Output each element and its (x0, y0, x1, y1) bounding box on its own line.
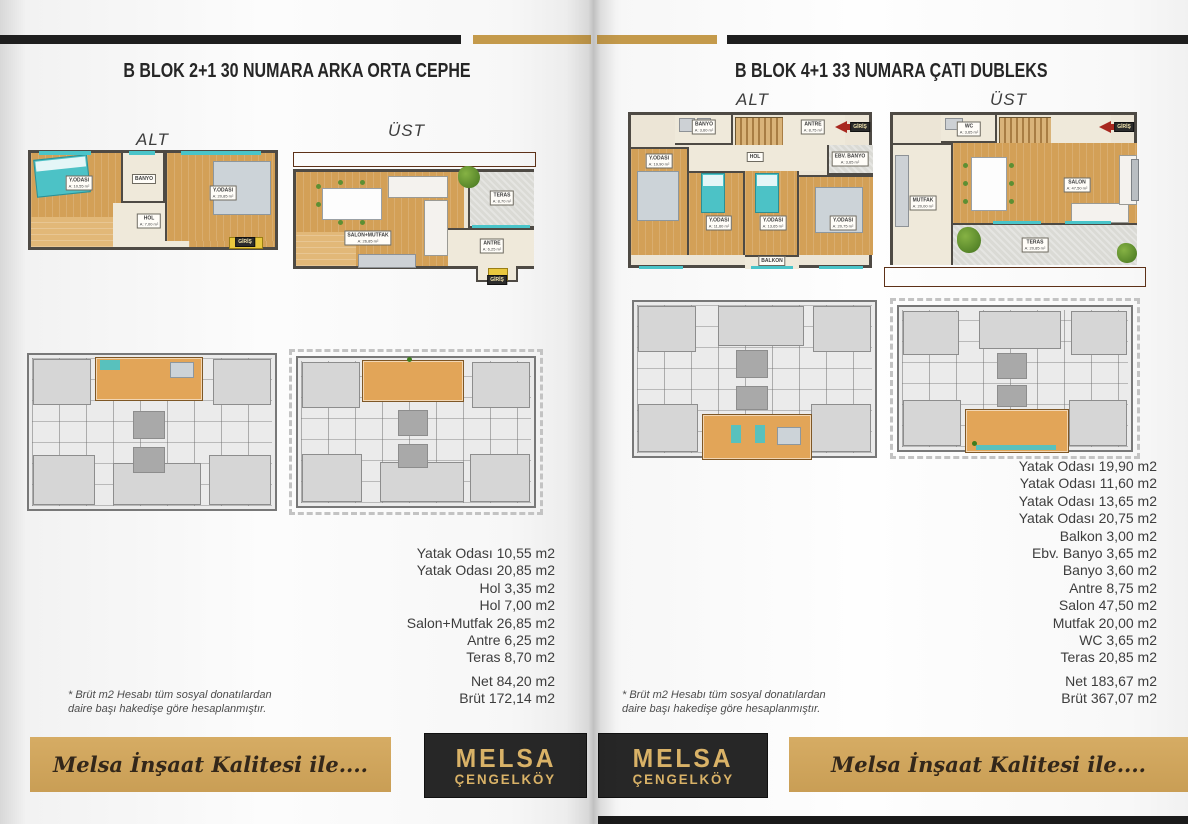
room-label: BANYO (132, 174, 156, 184)
room-area: A: 20,85 m² (213, 194, 234, 199)
logo-line2: ÇENGELKÖY (455, 771, 556, 787)
highlighted-unit (95, 357, 203, 401)
highlighted-unit (702, 414, 812, 460)
room-label: TERASA: 8,70 m² (490, 191, 514, 206)
quality-banner: Melsa İnşaat Kalitesi ile.... (789, 737, 1188, 792)
giris-arrow-icon (1099, 121, 1111, 133)
chair-icon (963, 199, 968, 204)
measurement-line: Yatak Odası 13,65 m2 (897, 493, 1157, 510)
room-name: GİRİŞ (1117, 124, 1131, 130)
keyplan-room (813, 306, 871, 352)
bed-icon (701, 173, 725, 213)
entrance-label: GİRİŞ (850, 122, 870, 132)
room-area: A: 20,85 m² (1025, 246, 1046, 251)
left-ust-floorplan: SALON+MUTFAKA: 26,85 m² TERASA: 8,70 m² … (293, 169, 534, 269)
plant-icon (957, 227, 981, 253)
room-label: Y.ODASIA: 20,85 m² (210, 186, 237, 201)
keyplan-core (736, 386, 768, 410)
footnote-line2: daire başı hakedişe göre hesaplanmıştır. (68, 702, 272, 716)
keyplan-room (718, 306, 804, 346)
unit-bed (170, 362, 194, 378)
giris-arrow-icon (835, 121, 847, 133)
room-area: A: 3,65 m² (960, 130, 978, 135)
keyplan-room (979, 311, 1061, 349)
chair-icon (963, 181, 968, 186)
room-name: HOL (750, 154, 761, 160)
measurement-line: Yatak Odası 11,60 m2 (897, 475, 1157, 492)
measurement-line: Mutfak 20,00 m2 (897, 615, 1157, 632)
plant-icon (458, 166, 480, 188)
room-label: SALON+MUTFAKA: 26,85 m² (344, 231, 391, 246)
left-ust-caption: ÜST (388, 121, 425, 141)
footnote-line1: * Brüt m2 Hesabı tüm sosyal donatılardan (622, 688, 826, 702)
top-bar-black-right (727, 35, 1188, 44)
room-name: BALKON (761, 258, 782, 264)
sofa (388, 176, 448, 198)
measurement-line: Antre 8,75 m2 (897, 580, 1157, 597)
keyplan-room (302, 454, 362, 502)
top-bar-black-left (0, 35, 461, 44)
keyplan-room (213, 359, 271, 405)
room-label: HOL (747, 152, 764, 162)
brochure-spread: B BLOK 2+1 30 NUMARA ARKA ORTA CEPHE B B… (0, 0, 1188, 824)
top-bar-gold-right (597, 35, 717, 44)
building-key-plan (632, 300, 877, 458)
room-area: A: 20,00 m² (913, 204, 934, 209)
highlighted-unit (362, 360, 464, 402)
room-label: EBV. BANYOA: 3,65 m² (832, 152, 869, 167)
banner-text: Melsa İnşaat Kalitesi ile.... (53, 752, 368, 777)
keyplan-room (380, 462, 464, 502)
building-key-plan (296, 356, 536, 508)
entrance-label: GİRİŞ (235, 237, 255, 247)
room-name: BANYO (135, 176, 153, 182)
room-area: A: 6,25 m² (483, 247, 501, 252)
keyplan-core (997, 353, 1027, 379)
room-area: A: 7,00 m² (140, 222, 158, 227)
left-alt-floorplan: Y.ODASIA: 10,55 m² BANYO Y.ODASIA: 20,85… (28, 150, 278, 250)
right-ust-floorplan: WCA: 3,65 m² GİRİŞ MUTFAKA: 20,00 m² SAL… (890, 112, 1137, 265)
keyplan-room (903, 311, 959, 355)
window-strip (181, 151, 261, 155)
logo-line1: MELSA (455, 745, 556, 771)
keyplan-core (398, 410, 428, 436)
keyplan-room (472, 362, 530, 408)
window-strip (993, 221, 1041, 224)
sofa (1071, 203, 1129, 223)
room-label: ANTREA: 8,75 m² (801, 120, 825, 135)
stairs (735, 117, 785, 147)
window-strip (639, 266, 683, 269)
brut-line: Brüt 172,14 m2 (295, 690, 555, 707)
building-key-plan (897, 305, 1133, 452)
window-strip (1065, 221, 1111, 224)
room-label: Y.ODASIA: 19,90 m² (646, 154, 673, 169)
measurement-line: Hol 7,00 m2 (295, 597, 555, 614)
room-label: Y.ODASIA: 11,60 m² (706, 216, 732, 231)
keyplan-room (209, 455, 271, 505)
chair-icon (1009, 163, 1014, 168)
chair-icon (360, 180, 365, 185)
chair-icon (316, 184, 321, 189)
room-name: GİRİŞ (853, 124, 867, 130)
room-area: A: 8,75 m² (804, 128, 822, 133)
room-label: SALONA: 47,50 m² (1064, 178, 1091, 193)
left-alt-caption: ALT (136, 130, 169, 150)
highlighted-unit (965, 409, 1069, 453)
keyplan-core (398, 444, 428, 468)
room-area: A: 26,85 m² (347, 239, 388, 244)
room-area: A: 10,55 m² (69, 184, 90, 189)
keyplan-room (302, 362, 360, 408)
tv-unit (1131, 159, 1139, 201)
room-area: A: 3,65 m² (835, 160, 866, 165)
footnote-line1: * Brüt m2 Hesabı tüm sosyal donatılardan (68, 688, 272, 702)
footnote-line2: daire başı hakedişe göre hesaplanmıştır. (622, 702, 826, 716)
building-key-plan (27, 353, 277, 511)
right-alt-floorplan: BANYOA: 3,60 m² ANTREA: 8,75 m² GİRİŞ EB… (628, 112, 872, 268)
keyplan-room (638, 404, 698, 452)
bottom-edge-strip (598, 816, 1188, 824)
left-page-title-text: B BLOK 2+1 30 NUMARA ARKA ORTA CEPHE (123, 60, 470, 83)
right-page-title: B BLOK 4+1 33 NUMARA ÇATI DUBLEKS (594, 60, 1188, 83)
window-strip (129, 151, 155, 155)
room-area: A: 13,65 m² (763, 224, 784, 229)
keyplan-core (997, 385, 1027, 407)
unit-terrace (976, 445, 1056, 450)
entrance-label: GİRİŞ (1114, 122, 1134, 132)
kitchen-counter (895, 155, 909, 227)
room-label: ANTREA: 6,25 m² (480, 239, 504, 254)
measurement-line: Hol 3,35 m2 (295, 580, 555, 597)
room-area: A: 19,90 m² (649, 162, 670, 167)
net-line: Net 183,67 m2 (897, 673, 1157, 690)
measurement-list: Yatak Odası 10,55 m2 Yatak Odası 20,85 m… (295, 545, 555, 708)
measurement-line: Yatak Odası 19,90 m2 (897, 458, 1157, 475)
left-page-title: B BLOK 2+1 30 NUMARA ARKA ORTA CEPHE (0, 60, 594, 83)
measurement-list: Yatak Odası 19,90 m2 Yatak Odası 11,60 m… (897, 458, 1157, 708)
window-strip (819, 266, 863, 269)
melsa-logo: MELSA ÇENGELKÖY (598, 733, 768, 798)
melsa-logo: MELSA ÇENGELKÖY (424, 733, 587, 798)
dining-table (322, 188, 382, 220)
keyplan-core (736, 350, 768, 378)
chair-icon (338, 220, 343, 225)
room-label: Y.ODASIA: 13,65 m² (760, 216, 787, 231)
unit-bed (777, 427, 801, 445)
room-label: BANYOA: 3,60 m² (692, 120, 716, 135)
chair-icon (316, 202, 321, 207)
unit-bed (755, 425, 765, 443)
bed-icon (637, 171, 679, 221)
plant-icon (407, 357, 412, 362)
measurement-line: WC 3,65 m2 (897, 632, 1157, 649)
chair-icon (360, 220, 365, 225)
kitchen-counter (358, 254, 416, 268)
room-label: WCA: 3,65 m² (957, 122, 981, 137)
top-bar-gold-left (473, 35, 591, 44)
measurement-line: Balkon 3,00 m2 (897, 528, 1157, 545)
room-label: TERASA: 20,85 m² (1022, 238, 1049, 253)
room-name: GİRİŞ (490, 277, 504, 283)
plant-icon (972, 441, 977, 446)
keyplan-room (811, 404, 871, 452)
keyplan-room (1069, 400, 1127, 446)
measurement-line: Yatak Odası 10,55 m2 (295, 545, 555, 562)
room-label: BALKON (758, 256, 785, 266)
keyplan-room (33, 455, 95, 505)
logo-line2: ÇENGELKÖY (632, 771, 733, 787)
measurement-line: Salon 47,50 m2 (897, 597, 1157, 614)
keyplan-room (470, 454, 530, 502)
room-area: A: 20,75 m² (833, 224, 854, 229)
keyplan-room (903, 400, 961, 446)
chair-icon (338, 180, 343, 185)
chair-icon (1009, 181, 1014, 186)
footnote: * Brüt m2 Hesabı tüm sosyal donatılardan… (68, 688, 272, 716)
roof-brick-strip (293, 152, 536, 167)
chair-icon (963, 163, 968, 168)
quality-banner: Melsa İnşaat Kalitesi ile.... (30, 737, 391, 792)
roof-brick-strip (884, 267, 1146, 287)
right-page-title-text: B BLOK 4+1 33 NUMARA ÇATI DUBLEKS (735, 60, 1047, 83)
room-area: A: 8,70 m² (493, 199, 511, 204)
dining-table (971, 157, 1007, 211)
window-strip (39, 151, 91, 155)
measurement-line: Teras 20,85 m2 (897, 649, 1157, 666)
measurement-line: Yatak Odası 20,85 m2 (295, 562, 555, 579)
measurement-line: Teras 8,70 m2 (295, 649, 555, 666)
unit-bed (100, 360, 120, 370)
brut-line: Brüt 367,07 m2 (897, 690, 1157, 707)
footnote: * Brüt m2 Hesabı tüm sosyal donatılardan… (622, 688, 826, 716)
entrance-label: GİRİŞ (487, 275, 507, 285)
room-name: GİRİŞ (238, 239, 252, 245)
keyplan-core (133, 411, 165, 439)
measurement-line: Ebv. Banyo 3,65 m2 (897, 545, 1157, 562)
measurement-line: Salon+Mutfak 26,85 m2 (295, 615, 555, 632)
totals-group: Net 183,67 m2 Brüt 367,07 m2 (897, 673, 1157, 708)
measurement-line: Yatak Odası 20,75 m2 (897, 510, 1157, 527)
keyplan-core (133, 447, 165, 473)
plant-icon (1117, 243, 1137, 263)
right-ust-caption: ÜST (990, 90, 1027, 110)
room-label: MUTFAKA: 20,00 m² (910, 196, 937, 211)
room-label: HOLA: 7,00 m² (137, 214, 161, 229)
net-line: Net 84,20 m2 (295, 673, 555, 690)
open-area (31, 217, 113, 247)
sofa (424, 200, 448, 256)
logo-line1: MELSA (633, 745, 734, 771)
window-strip (751, 266, 793, 269)
room-area: A: 11,60 m² (709, 224, 729, 229)
keyplan-room (33, 359, 91, 405)
stairs (999, 117, 1053, 145)
room-label: Y.ODASIA: 10,55 m² (66, 176, 93, 191)
banner-text: Melsa İnşaat Kalitesi ile.... (831, 752, 1146, 777)
unit-bed (731, 425, 741, 443)
bed-icon (755, 173, 779, 213)
room-label: Y.ODASIA: 20,75 m² (830, 216, 857, 231)
room-area: A: 3,60 m² (695, 128, 713, 133)
keyplan-room (638, 306, 696, 352)
right-alt-caption: ALT (736, 90, 769, 110)
totals-group: Net 84,20 m2 Brüt 172,14 m2 (295, 673, 555, 708)
measurement-line: Antre 6,25 m2 (295, 632, 555, 649)
measurement-line: Banyo 3,60 m2 (897, 562, 1157, 579)
chair-icon (1009, 199, 1014, 204)
room-area: A: 47,50 m² (1067, 186, 1088, 191)
keyplan-room (1071, 311, 1127, 355)
